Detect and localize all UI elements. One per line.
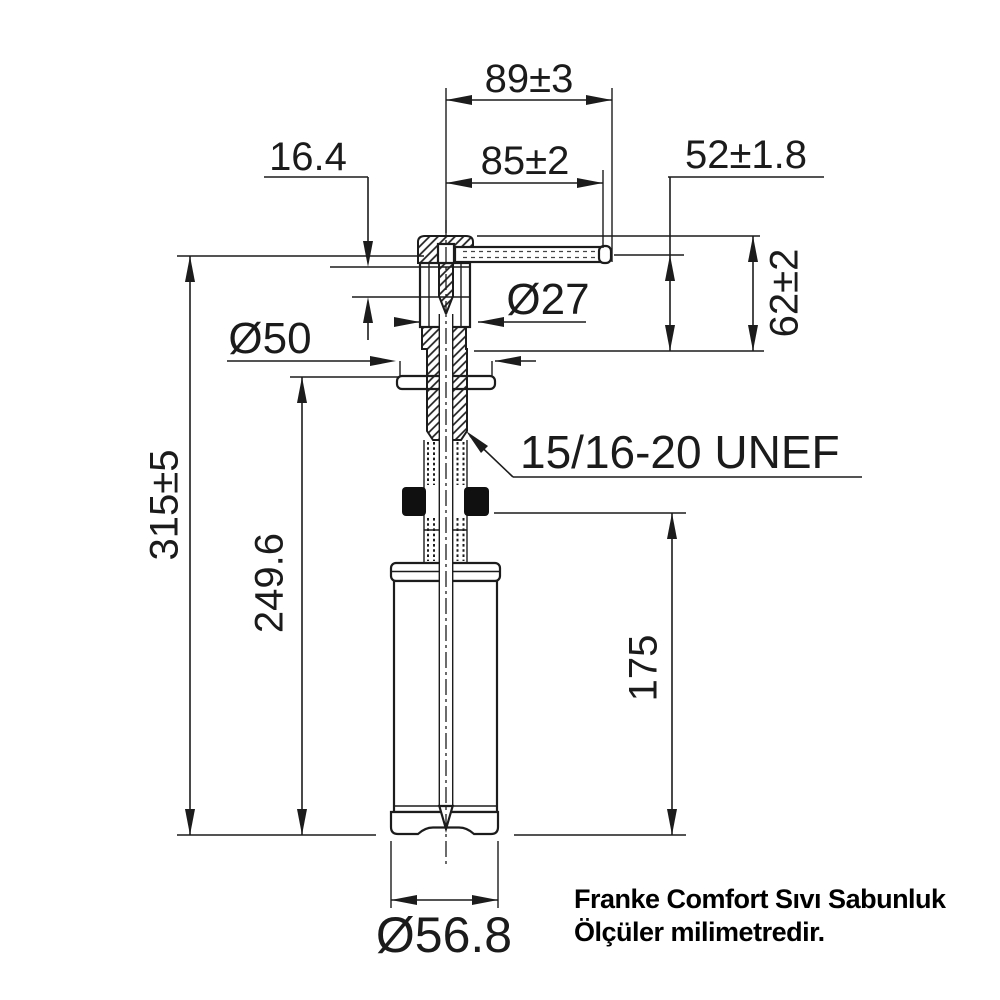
arrowhead	[446, 178, 472, 188]
arrowhead	[391, 895, 417, 905]
dim-164-label: 16.4	[269, 135, 347, 179]
spout-arm	[455, 246, 611, 263]
dim-bottle-diameter: Ø56.8	[376, 841, 512, 963]
dim-dia27-label: Ø27	[506, 275, 589, 324]
dim-bottle-clearance: 175	[494, 513, 686, 835]
arrowhead	[363, 297, 373, 323]
dim-2496-label: 249.6	[248, 533, 292, 633]
arrowhead	[370, 356, 396, 366]
arrowhead	[577, 178, 603, 188]
dim-62-label: 62±2	[763, 249, 807, 338]
arrowhead	[665, 325, 675, 351]
spout-end-cap	[599, 246, 611, 263]
arrowhead	[394, 317, 420, 327]
arrowhead	[363, 241, 373, 267]
technical-drawing-page: 89±3 85±2 52±1.8 62±2	[0, 0, 1000, 1000]
arrowhead	[478, 317, 504, 327]
dimension-annotations: 89±3 85±2 52±1.8 62±2	[143, 57, 862, 963]
arrowhead	[667, 513, 677, 539]
arrowhead	[586, 95, 612, 105]
arrowhead	[446, 95, 472, 105]
thread-spec-callout: 15/16-20 UNEF	[466, 426, 862, 478]
dim-below-flange-height: 249.6	[248, 377, 399, 835]
dim-spout-reach: 85±2	[446, 139, 603, 248]
product-name-text: Franke Comfort Sıvı Sabunluk	[574, 884, 947, 914]
dim-pump-stroke: 16.4	[264, 135, 373, 340]
arrowhead	[185, 256, 195, 282]
leader-line	[470, 436, 513, 477]
dim-175-label: 175	[622, 635, 666, 702]
dim-52-label: 52±1.8	[685, 133, 807, 177]
arrowhead	[665, 255, 675, 281]
dim-dia50-label: Ø50	[228, 314, 311, 363]
footer-note: Franke Comfort Sıvı Sabunluk Ölçüler mil…	[574, 884, 947, 947]
nut-right-half	[464, 487, 489, 516]
arrowhead	[667, 809, 677, 835]
soap-dispenser-drawing: 89±3 85±2 52±1.8 62±2	[0, 0, 1000, 1000]
dim-315-label: 315±5	[143, 450, 187, 561]
arrowhead	[748, 325, 758, 351]
dim-dia568-label: Ø56.8	[376, 907, 512, 963]
arrowhead	[472, 895, 498, 905]
arrowhead	[297, 809, 307, 835]
arrowhead	[495, 356, 521, 366]
arrowhead	[185, 809, 195, 835]
arrowhead	[748, 236, 758, 262]
nut-left-half	[402, 487, 426, 516]
thread-spec-label: 15/16-20 UNEF	[520, 426, 840, 478]
units-note-text: Ölçüler milimetredir.	[574, 917, 825, 947]
arrowhead	[297, 377, 307, 403]
dim-85-label: 85±2	[481, 139, 570, 183]
dim-89-label: 89±3	[485, 57, 574, 101]
spout-tube	[455, 247, 603, 262]
